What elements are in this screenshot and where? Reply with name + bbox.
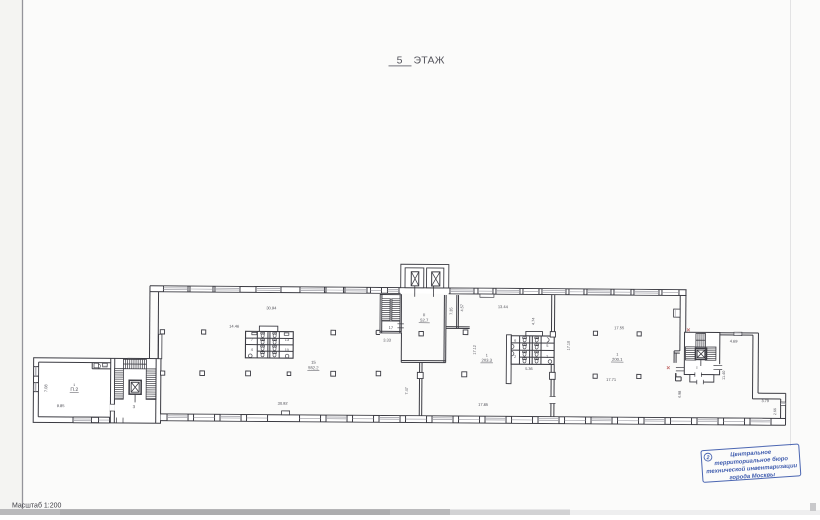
svg-text:13.44: 13.44 xyxy=(498,304,509,309)
svg-text:14.46: 14.46 xyxy=(229,324,240,329)
svg-text:II: II xyxy=(423,312,425,317)
svg-text:52.7: 52.7 xyxy=(420,318,429,323)
svg-text:10: 10 xyxy=(285,348,289,352)
svg-text:2.65: 2.65 xyxy=(102,364,108,368)
svg-text:1: 1 xyxy=(73,383,75,387)
svg-text:3.79: 3.79 xyxy=(761,399,768,403)
svg-text:17.71: 17.71 xyxy=(606,377,617,382)
svg-text:2.66: 2.66 xyxy=(773,408,777,415)
svg-text:5: 5 xyxy=(397,55,403,67)
svg-text:3.33: 3.33 xyxy=(383,338,392,343)
svg-text:13: 13 xyxy=(285,338,289,342)
svg-text:ЭТАЖ: ЭТАЖ xyxy=(414,55,445,67)
svg-text:4.98: 4.98 xyxy=(678,391,682,398)
svg-text:9.85: 9.85 xyxy=(57,403,66,408)
svg-text:I: I xyxy=(696,365,697,370)
svg-text:2: 2 xyxy=(705,455,709,461)
svg-text:5.36: 5.36 xyxy=(525,367,532,371)
svg-text:30.94: 30.94 xyxy=(266,305,277,310)
svg-text:4: 4 xyxy=(251,348,253,352)
svg-text:17.10: 17.10 xyxy=(567,341,571,351)
svg-text:17.12: 17.12 xyxy=(473,345,477,355)
svg-text:17.55: 17.55 xyxy=(614,325,625,330)
svg-text:552.2: 552.2 xyxy=(308,365,319,370)
svg-text:Масштаб 1:200: Масштаб 1:200 xyxy=(12,502,62,510)
svg-text:7.35: 7.35 xyxy=(449,308,453,315)
svg-text:200.1: 200.1 xyxy=(612,357,623,362)
svg-text:11.40: 11.40 xyxy=(722,371,726,380)
svg-text:4.69: 4.69 xyxy=(730,339,739,344)
svg-text:15: 15 xyxy=(311,360,316,365)
svg-text:17.85: 17.85 xyxy=(478,402,489,407)
svg-text:7.47: 7.47 xyxy=(405,387,409,394)
svg-text:2: 2 xyxy=(514,355,516,359)
svg-text:203.3: 203.3 xyxy=(482,358,493,363)
svg-text:2: 2 xyxy=(546,355,548,359)
svg-text:7.08: 7.08 xyxy=(43,384,48,393)
svg-text:5: 5 xyxy=(546,344,548,348)
svg-text:7: 7 xyxy=(251,338,253,342)
svg-text:4.57: 4.57 xyxy=(460,304,464,311)
svg-text:6: 6 xyxy=(514,339,516,343)
svg-text:30.92: 30.92 xyxy=(278,401,289,406)
svg-text:4.74: 4.74 xyxy=(532,318,536,325)
